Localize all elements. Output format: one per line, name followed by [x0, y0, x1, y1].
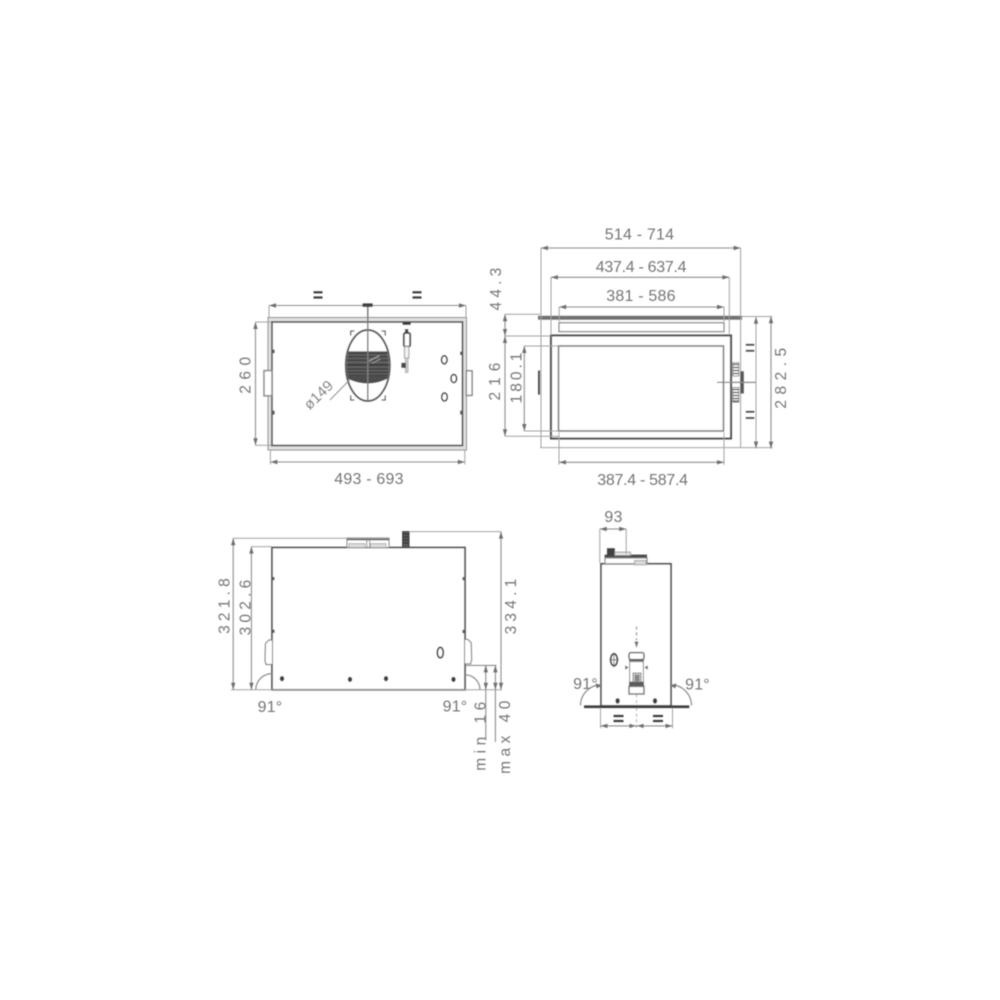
svg-text:min 16: min 16: [472, 697, 489, 771]
svg-text:381 - 586: 381 - 586: [606, 288, 675, 305]
svg-text:282.5: 282.5: [773, 342, 790, 408]
svg-text:387.4 - 587.4: 387.4 - 587.4: [597, 472, 688, 489]
svg-text:44.3: 44.3: [488, 264, 505, 311]
svg-text:514 - 714: 514 - 714: [605, 227, 674, 244]
svg-text:302.6: 302.6: [237, 576, 254, 636]
svg-text:91°: 91°: [685, 677, 710, 694]
svg-text:93: 93: [604, 509, 622, 526]
svg-text:321.8: 321.8: [217, 574, 234, 634]
svg-text:216: 216: [487, 357, 504, 401]
svg-text:437.4 - 637.4: 437.4 - 637.4: [596, 259, 687, 276]
svg-text:493 - 693: 493 - 693: [334, 471, 403, 488]
svg-text:91°: 91°: [443, 699, 468, 716]
svg-text:91°: 91°: [573, 676, 598, 693]
svg-text:180.1: 180.1: [509, 350, 526, 404]
svg-text:max 40: max 40: [497, 696, 514, 774]
svg-text:91°: 91°: [258, 699, 283, 716]
svg-text:260: 260: [238, 351, 255, 393]
svg-text:334.1: 334.1: [503, 575, 520, 635]
